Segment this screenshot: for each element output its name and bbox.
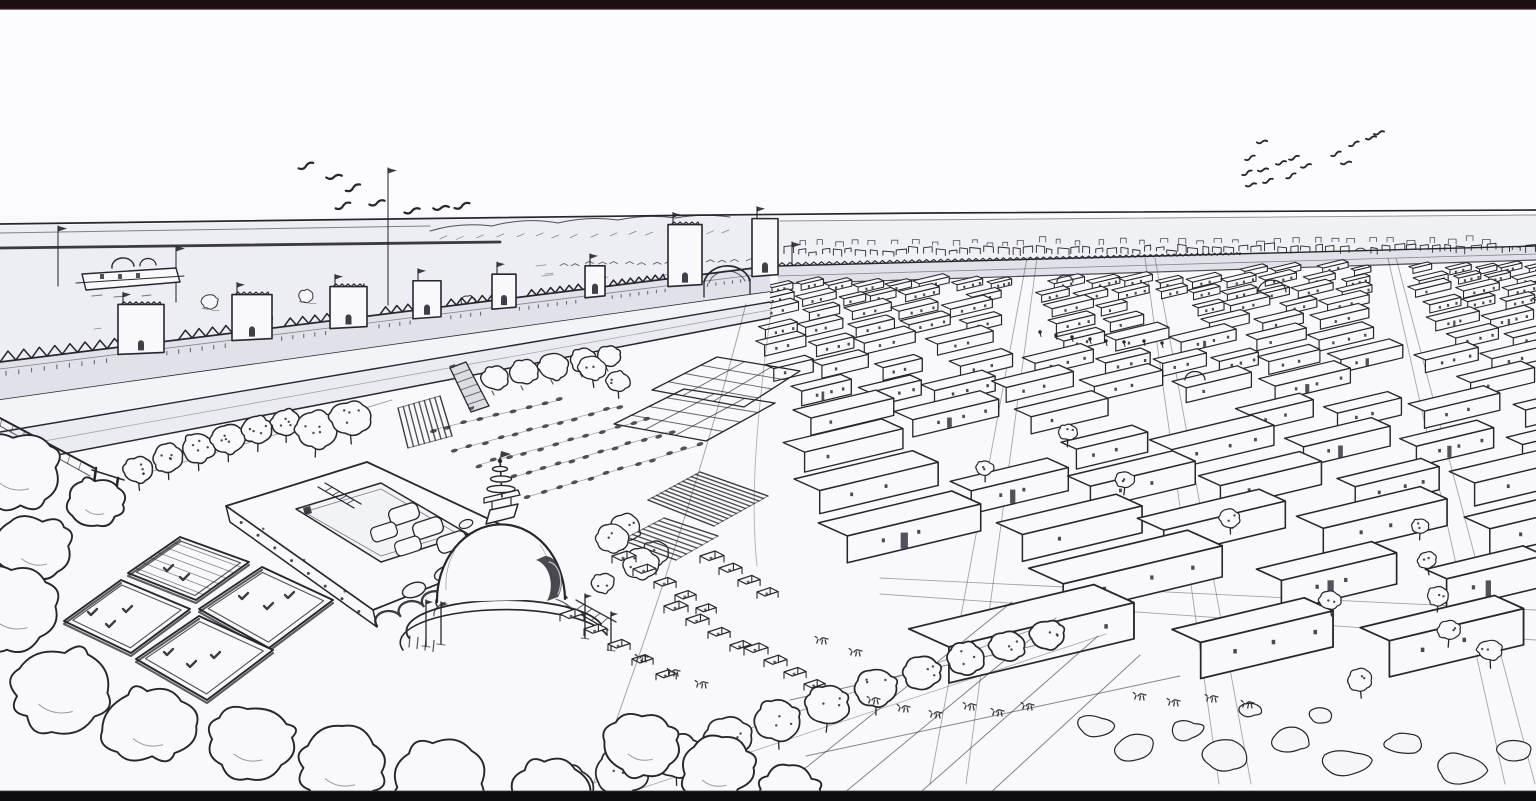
video-frame: Hand-drawn black-and-white bird's-eye re… bbox=[0, 0, 1536, 801]
city-illustration bbox=[0, 0, 1536, 801]
